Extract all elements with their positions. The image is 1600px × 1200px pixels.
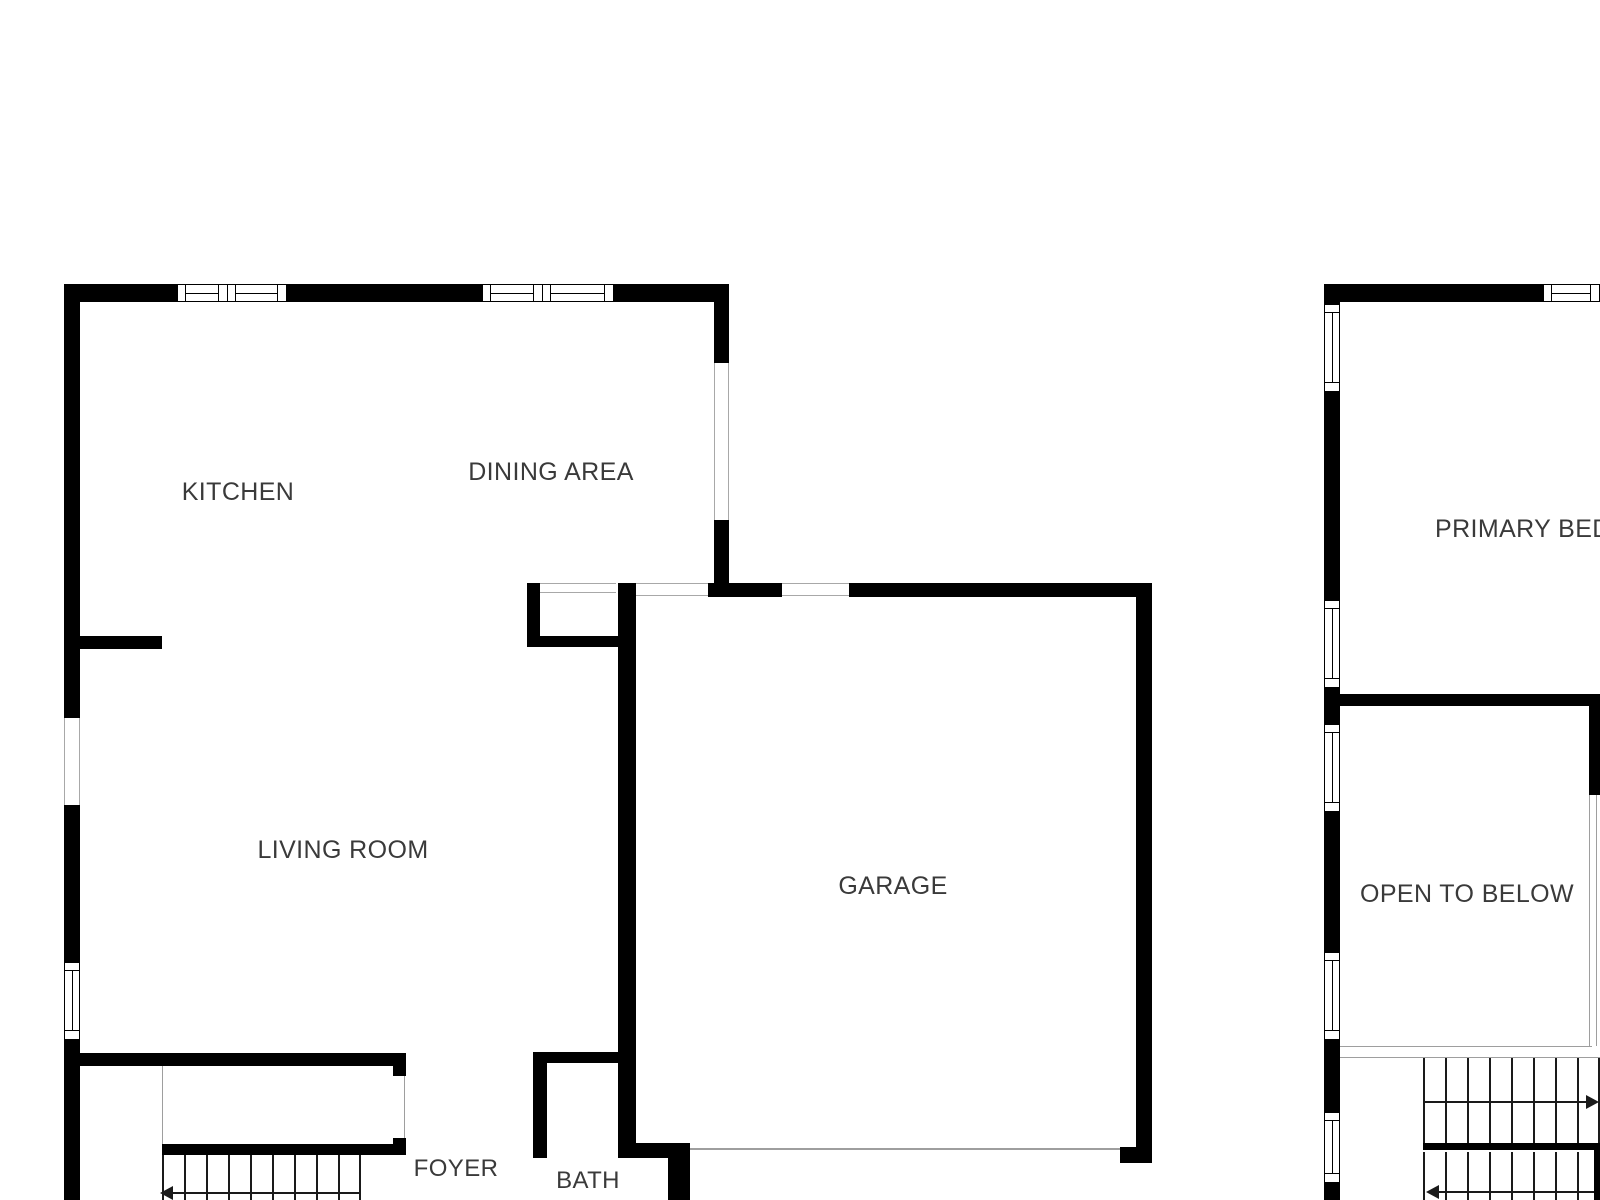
interior-wall-dining-right <box>714 284 729 363</box>
stair-landing-edge <box>404 1076 405 1138</box>
exterior-wall-left <box>64 284 80 718</box>
room-label-dining-area: DINING AREA <box>451 457 651 487</box>
stair-direction-line <box>1437 1191 1600 1193</box>
window-icon <box>542 284 614 302</box>
wall-opening <box>636 583 708 596</box>
exterior-wall-left <box>1324 1183 1340 1200</box>
stair-side-wall <box>1594 1150 1600 1200</box>
room-label-garage: GARAGE <box>793 871 993 901</box>
open-to-below-edge <box>1589 795 1590 1046</box>
wall-opening <box>64 718 80 805</box>
closet-door-opening <box>540 583 616 593</box>
window-icon <box>1324 1112 1340 1183</box>
room-label-open-to-below: OPEN TO BELOW <box>1337 879 1597 909</box>
exterior-wall-top <box>64 284 177 302</box>
garage-wall-left <box>618 583 636 1158</box>
window-icon <box>1543 284 1600 302</box>
exterior-wall-left <box>1324 284 1340 304</box>
exterior-wall-top <box>614 284 729 302</box>
stairwell-wall-stub <box>393 1138 406 1144</box>
room-label-foyer: FOYER <box>396 1155 516 1184</box>
stairwell-wall-top <box>64 1053 406 1066</box>
window-icon <box>1324 600 1340 688</box>
exterior-wall-right <box>1589 706 1600 795</box>
room-label-kitchen: KITCHEN <box>138 477 338 507</box>
window-icon <box>177 284 228 302</box>
stair-direction-arrow-icon <box>160 1186 173 1200</box>
garage-wall-right <box>1136 583 1152 1163</box>
stair-direction-arrow-icon <box>1426 1185 1439 1199</box>
exterior-wall-left <box>1324 392 1340 600</box>
stair-top-edge <box>1340 1057 1600 1058</box>
stairwell-wall-stub <box>393 1066 406 1076</box>
exterior-wall-left <box>1324 688 1340 724</box>
window-icon <box>1324 304 1340 392</box>
room-label-primary-bedroom: PRIMARY BEDROOM <box>1435 514 1600 544</box>
room-label-living-room: LIVING ROOM <box>243 835 443 865</box>
garage-wall-jamb <box>668 1158 690 1200</box>
stair-direction-line <box>172 1192 360 1194</box>
exterior-wall-left <box>1324 1040 1340 1112</box>
garage-door-line <box>690 1148 1120 1150</box>
stair-direction-arrow-icon <box>1586 1095 1599 1109</box>
window-icon <box>1324 724 1340 812</box>
floor-plan: KITCHEN DINING AREA LIVING ROOM GARAGE F… <box>0 0 1600 1200</box>
room-label-bath: BATH <box>528 1167 648 1196</box>
open-to-below-edge <box>1340 1046 1592 1047</box>
window-icon <box>482 284 543 302</box>
exterior-wall-top <box>287 284 482 302</box>
stair-tread <box>1423 1152 1425 1200</box>
stair-flight-divider <box>1423 1143 1600 1150</box>
window-icon <box>64 962 80 1040</box>
interior-wall-bedroom-divider <box>1340 694 1600 706</box>
interior-wall-kitchen-divider <box>64 636 162 649</box>
stair-direction-line <box>1423 1101 1588 1103</box>
window-icon <box>1324 952 1340 1040</box>
window-icon <box>227 284 287 302</box>
wall-opening <box>714 363 729 520</box>
open-to-below-edge <box>1596 795 1597 1046</box>
garage-wall-bottom <box>636 1143 690 1158</box>
stair-landing-edge <box>162 1066 163 1144</box>
wall-opening <box>782 583 849 596</box>
bath-wall-left <box>533 1052 547 1158</box>
exterior-wall-left <box>64 805 80 962</box>
garage-wall-top <box>849 583 1152 597</box>
exterior-wall-top <box>1324 284 1543 302</box>
garage-wall-bottom <box>1120 1147 1152 1163</box>
garage-wall-top <box>708 583 782 597</box>
stairwell-wall-bottom <box>162 1144 406 1155</box>
